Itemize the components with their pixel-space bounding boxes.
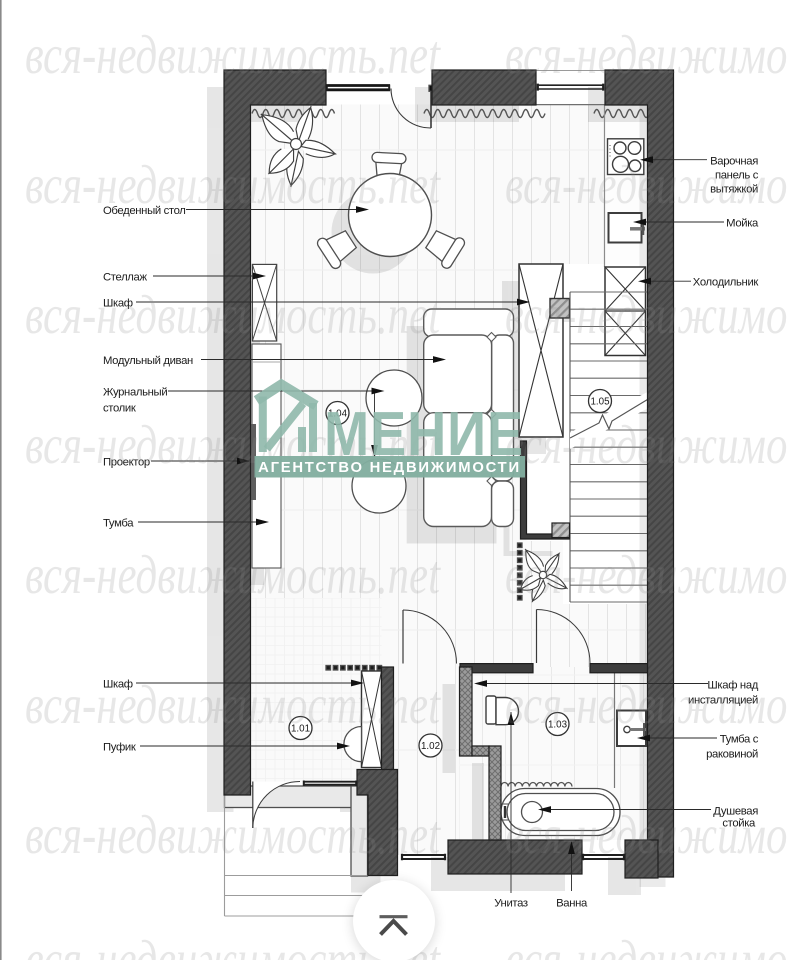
svg-text:вся-недвижимость.net: вся-недвижимость.net xyxy=(25,284,441,345)
svg-text:Тумба: Тумба xyxy=(103,518,134,530)
svg-text:Мойка: Мойка xyxy=(726,217,759,229)
svg-text:вся-недвижимость.net: вся-недвижимость.net xyxy=(505,804,787,865)
svg-text:Унитаз: Унитаз xyxy=(494,898,528,910)
svg-text:Модульный диван: Модульный диван xyxy=(103,355,193,367)
svg-text:вся-недвижимость.net: вся-недвижимость.net xyxy=(505,674,787,735)
svg-text:вся-недвижимость.net: вся-недвижимость.net xyxy=(505,414,787,475)
svg-text:АГЕНТСТВО НЕДВИЖИМОСТИ: АГЕНТСТВО НЕДВИЖИМОСТИ xyxy=(258,460,521,476)
svg-text:Тумба с: Тумба с xyxy=(720,733,759,745)
svg-text:1.02: 1.02 xyxy=(421,741,440,752)
svg-text:вся-недвижимость.net: вся-недвижимость.net xyxy=(25,544,441,605)
svg-text:вся-недвижимость.net: вся-недвижимость.net xyxy=(25,154,441,215)
svg-text:вся-недвижимость.net: вся-недвижимость.net xyxy=(25,24,441,85)
svg-text:вся-недвижимость.net: вся-недвижимость.net xyxy=(505,544,787,605)
svg-text:Стеллаж: Стеллаж xyxy=(103,272,147,284)
svg-text:вся-недвижимость.net: вся-недвижимость.net xyxy=(505,154,787,215)
svg-text:вся-недвижимость.net: вся-недвижимость.net xyxy=(505,24,787,85)
svg-text:Журнальный: Журнальный xyxy=(103,387,167,399)
svg-text:вся-недвижимость.net: вся-недвижимость.net xyxy=(25,804,441,865)
svg-text:столик: столик xyxy=(103,403,136,415)
svg-text:вся-недвижимость.net: вся-недвижимость.net xyxy=(505,929,787,960)
svg-text:Ванна: Ванна xyxy=(556,898,588,910)
svg-text:вся-недвижимость.net: вся-недвижимость.net xyxy=(25,674,441,735)
svg-text:Пуфик: Пуфик xyxy=(103,742,136,754)
svg-text:1.05: 1.05 xyxy=(590,396,610,407)
svg-text:вся-недвижимость.net: вся-недвижимость.net xyxy=(505,284,787,345)
svg-text:раковиной: раковиной xyxy=(706,748,758,760)
